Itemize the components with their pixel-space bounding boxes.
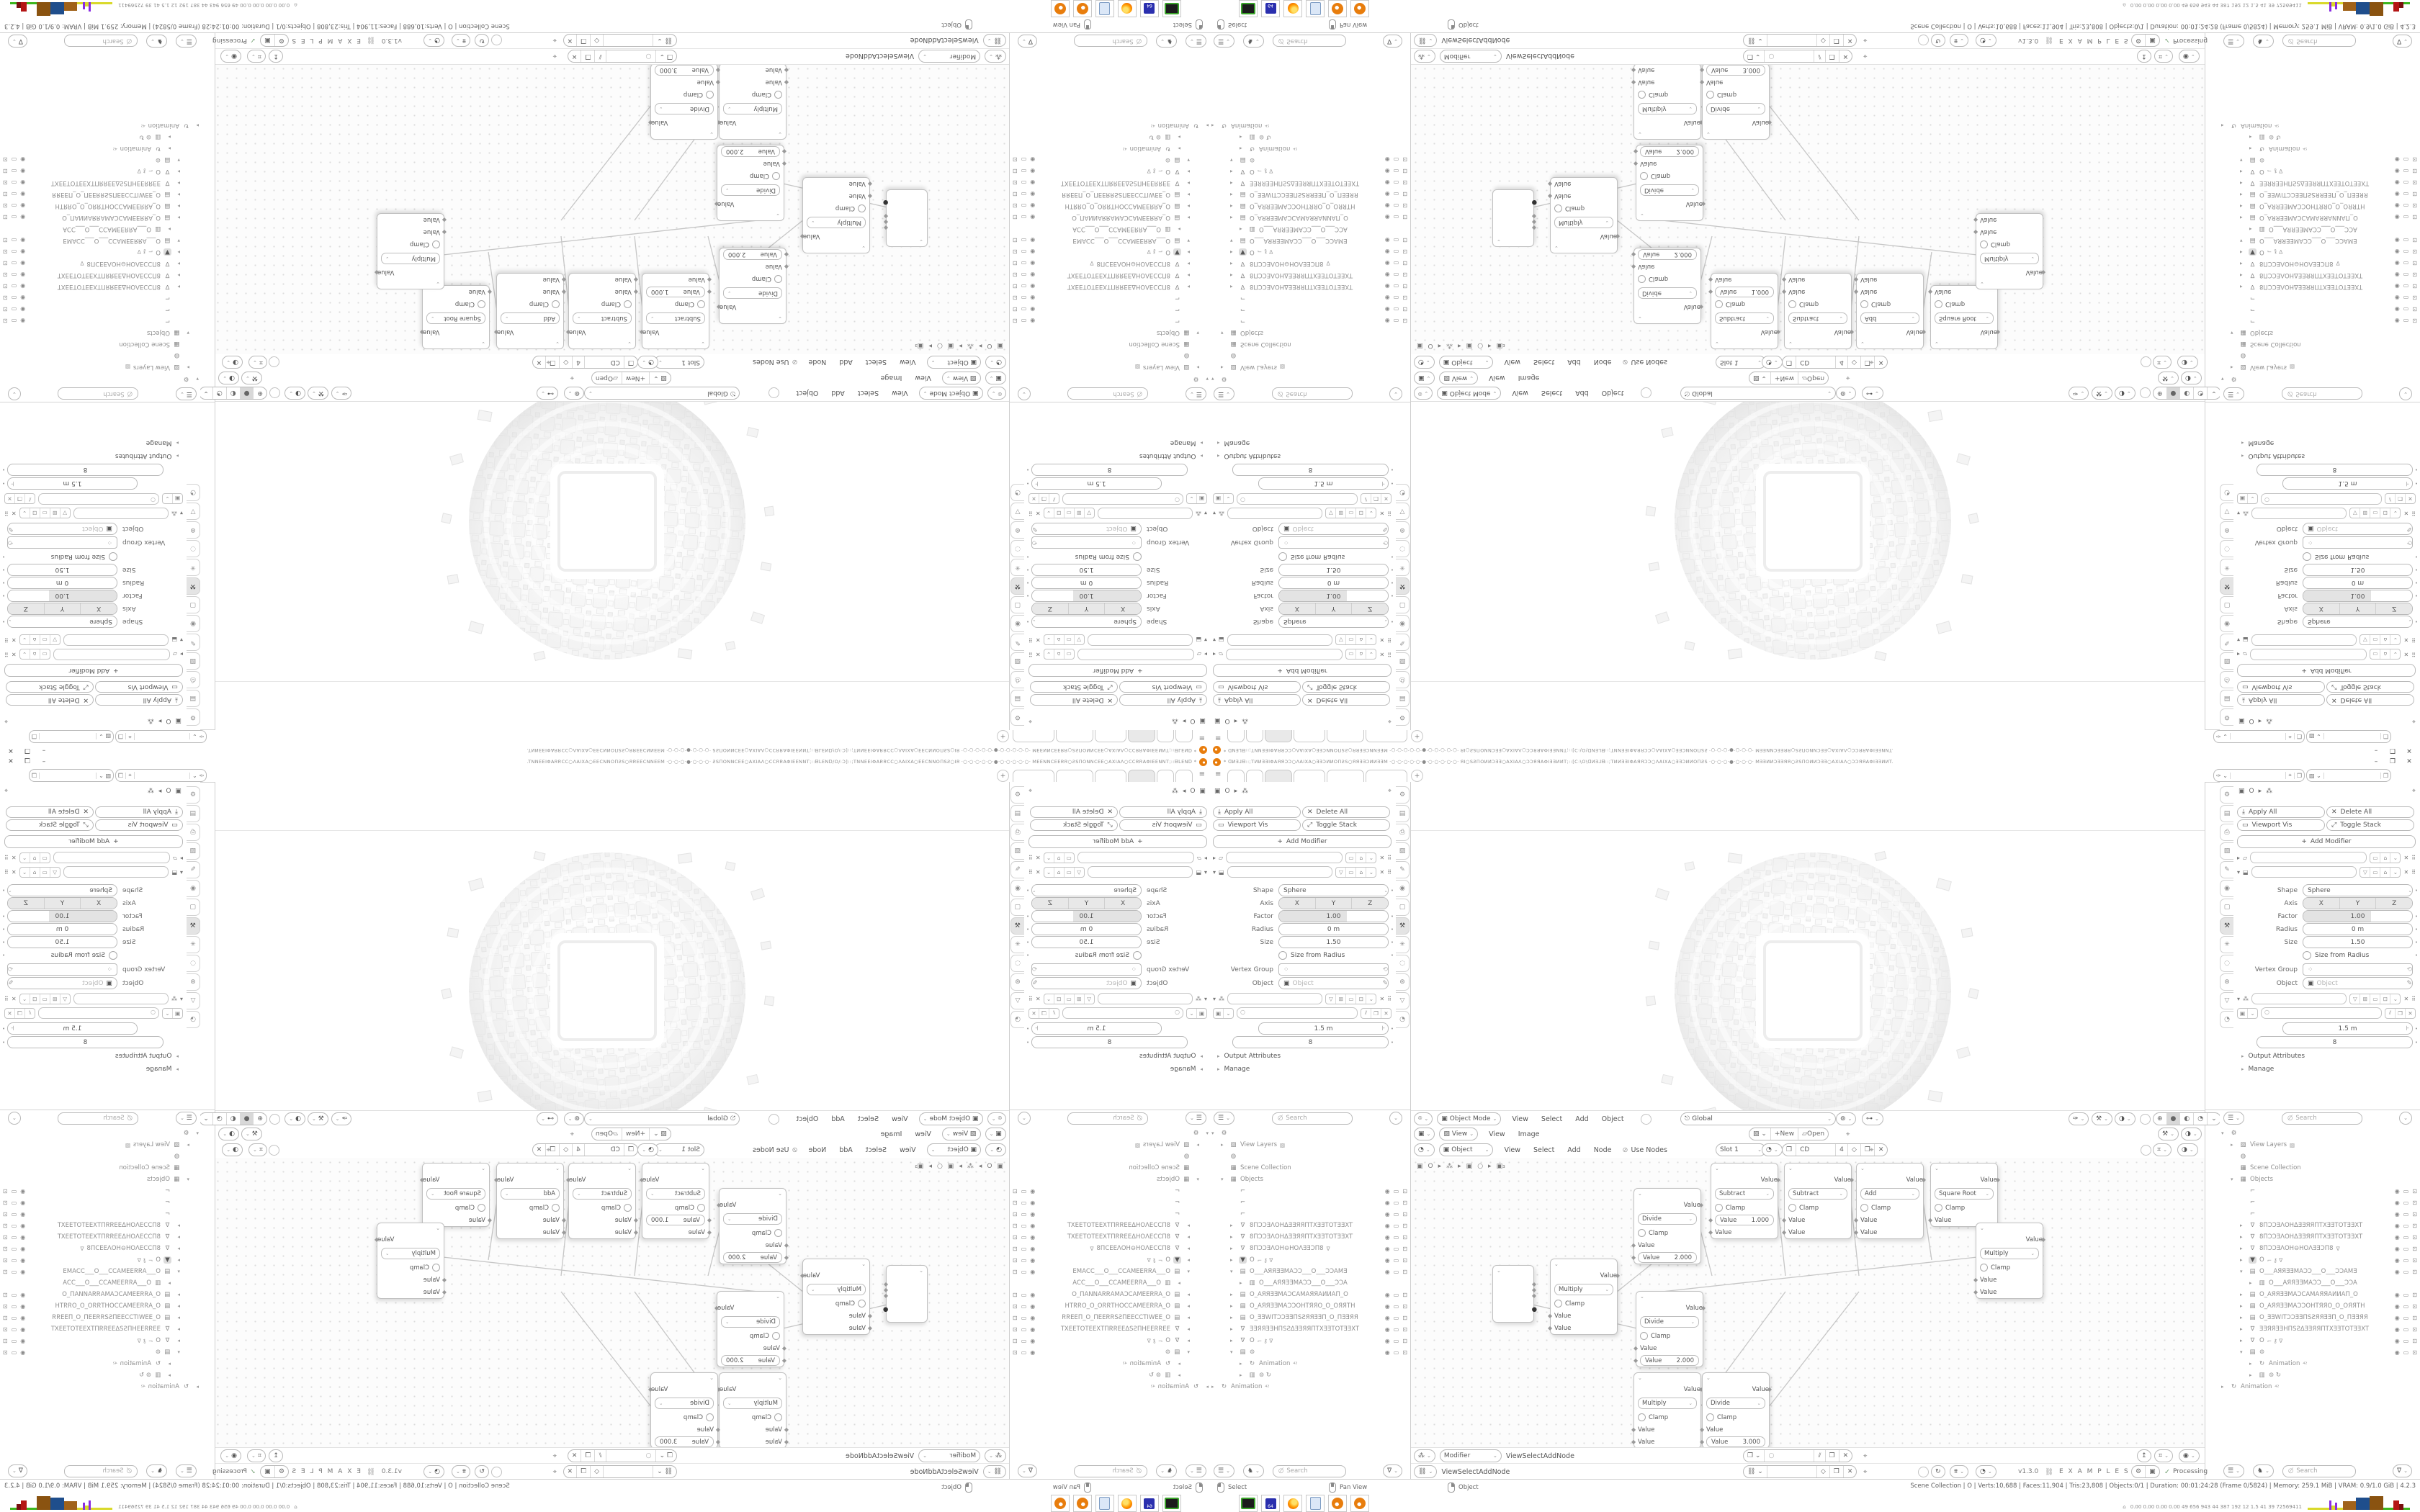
- node-editor-canvas[interactable]: ▣O▸⁂▸▣○▸▣₃ ⌄◆◆◆●⌄Value◆Multiply⌄Clamp◆Va…: [1411, 1158, 2205, 1447]
- math-node-subtract[interactable]: ⌄Value◆Subtract⌄Clamp◆Value1.000◆Value: [642, 273, 709, 349]
- close-icon[interactable]: ✕: [1036, 855, 1041, 861]
- disable-viewport-icon[interactable]: ▭: [1394, 1292, 1399, 1298]
- disable-render-icon[interactable]: ⊡: [3, 1246, 8, 1252]
- hide-icon[interactable]: ◉: [20, 1292, 25, 1298]
- disable-viewport-icon[interactable]: ▭: [1394, 203, 1399, 210]
- axis-toggle[interactable]: XYZ: [7, 897, 117, 909]
- properties-tab-icon-11[interactable]: ▽: [1396, 992, 1410, 1009]
- use-nodes-checkbox[interactable]: ⊘Use Nodes: [753, 359, 797, 366]
- calculator-icon[interactable]: [1306, 0, 1325, 17]
- outliner-item[interactable]: ▸▼O⌐ ⚷ ∇◉▭⊡: [2221, 1254, 2419, 1266]
- properties-tab-icon-10[interactable]: ⊛: [1010, 521, 1024, 539]
- outliner-item[interactable]: ▸∇ƎƎЯЯƎƎHΠSƧΔƎƎЯЯΠTXƎƎTOTƎƎXT◉▭⊡: [2221, 177, 2419, 189]
- outliner-item[interactable]: ▸▥O___AЯЯƎƎMAϽϽ___O___ϽϽA: [1011, 223, 1209, 235]
- menu-object[interactable]: Object: [796, 1115, 818, 1123]
- tool-datablock-selector[interactable]: ✑ ⌄ ⌖ ❐: [115, 730, 207, 743]
- drag-handle-icon[interactable]: ⠿: [1028, 869, 1033, 876]
- properties-tab-icon-5[interactable]: ◉: [187, 880, 200, 897]
- snap-magnet-button[interactable]: ⊶⌄: [537, 387, 558, 400]
- manage-section[interactable]: ▸Manage: [2241, 1066, 2274, 1073]
- disable-viewport-icon[interactable]: ▭: [1021, 295, 1027, 302]
- math-node-subtract[interactable]: ⌄Value◆Subtract⌄Clamp◆Value◆Value: [568, 1163, 636, 1239]
- copy-icon[interactable]: ❐: [116, 734, 126, 740]
- overlays-button[interactable]: ◑⌄: [2115, 1112, 2136, 1125]
- menu-select[interactable]: Select: [1541, 1115, 1562, 1123]
- outliner-item[interactable]: ▾▦Objects: [1, 1174, 199, 1185]
- new-image-button[interactable]: + New: [1771, 372, 1798, 384]
- outliner-item[interactable]: ▸▤O_AЯЯƎƎMAϽCAMAЯЯAИИAΠ_O◉▭⊡: [1211, 212, 1409, 223]
- disable-viewport-icon[interactable]: ▭: [12, 1292, 17, 1298]
- outliner-item[interactable]: ▸▤O_AЯЯƎƎMAϽϽOHTЯЯO_O_OЯЯTH◉▭⊡: [2221, 1300, 2419, 1312]
- toggle-stack-button[interactable]: ⤢Toggle Stack: [1302, 819, 1390, 831]
- hide-icon[interactable]: ◉: [20, 180, 25, 186]
- outliner-item[interactable]: ▾▤O___AЯЯƎƎMAϽϽ___O___ϽϽAMƎ◉▭⊡: [1011, 235, 1209, 246]
- axis-toggle[interactable]: XYZ: [2303, 603, 2413, 615]
- snap-mode-button[interactable]: ⌗⌄: [247, 50, 266, 63]
- outliner-search-input[interactable]: ○̸Search: [64, 1465, 138, 1477]
- disable-render-icon[interactable]: ⊡: [1013, 1269, 1018, 1275]
- outliner-search-input[interactable]: ○̸Search: [64, 35, 138, 48]
- refresh-button[interactable]: ↻: [1931, 34, 1945, 47]
- menu-view[interactable]: View: [1504, 359, 1520, 366]
- outliner-item[interactable]: ▸▥⊜ ↻: [1, 131, 199, 143]
- firefox-icon[interactable]: [1118, 1495, 1137, 1512]
- close-button[interactable]: ✕: [2404, 758, 2414, 765]
- hide-icon[interactable]: ◉: [1030, 1269, 1035, 1275]
- hide-icon[interactable]: ◉: [1385, 1338, 1390, 1344]
- drag-handle-icon[interactable]: ⠿: [1387, 996, 1391, 1002]
- hide-icon[interactable]: ◉: [1030, 1338, 1035, 1344]
- properties-tab-icon-3[interactable]: ▨: [2220, 842, 2233, 860]
- floppy-64-icon[interactable]: 64: [1261, 1495, 1280, 1512]
- pin-icon[interactable]: ⌖: [2285, 772, 2294, 779]
- outliner-item[interactable]: ▸▨View Layers▨: [1, 1139, 199, 1151]
- properties-tab-icon-12[interactable]: ◔: [187, 484, 200, 501]
- properties-tab-icon-5[interactable]: ◉: [1010, 880, 1024, 897]
- menu-node[interactable]: Node: [846, 1452, 864, 1460]
- length-field[interactable]: 1.5 m⊦: [2282, 1022, 2413, 1035]
- disable-viewport-icon[interactable]: ▭: [2403, 318, 2409, 325]
- outliner-item[interactable]: ▸↻Animation⁴²: [1211, 1381, 1409, 1392]
- hide-icon[interactable]: ◉: [1030, 203, 1035, 210]
- math-node-square-root[interactable]: ⌄Value◆Square Root⌄Clamp◆Value: [1930, 285, 1998, 349]
- modifier-slot-collapsed[interactable]: ▸▱ ▭⌂⌄ ✕⠿: [4, 852, 183, 863]
- disable-render-icon[interactable]: ⊡: [1013, 168, 1018, 175]
- math-node-multiply[interactable]: ⌄Value◆Multiply⌄Clamp◆Value◆Value: [1976, 213, 2043, 289]
- outliner-item[interactable]: ▸∇8ΠϽϽƎΛOHΔƎƎЯЯΠTXƎƎTOTƎƎXT◉▭⊡: [1011, 1231, 1209, 1243]
- outliner-item[interactable]: ▾⚙: [1011, 1128, 1209, 1139]
- blender-app-icon-2[interactable]: [1051, 0, 1070, 17]
- delete-all-button[interactable]: ✕Delete All: [1302, 806, 1390, 818]
- outliner-mode-2[interactable]: ♞⌄: [146, 35, 167, 48]
- math-node-multiply[interactable]: ⌄Value◆Multiply⌄Clamp◆Value◆Value: [1550, 177, 1618, 253]
- math-node-subtract[interactable]: ⌄Value◆Subtract⌄Clamp◆Value1.000◆Value: [642, 1163, 709, 1239]
- modifier-slot-collapsed[interactable]: ▸▱ ▭⌂⌄ ✕⠿: [1028, 852, 1207, 863]
- outliner-item[interactable]: ◍: [2221, 1151, 2419, 1162]
- size-field[interactable]: 1.50: [1031, 936, 1142, 948]
- outliner-item[interactable]: ▸∇ƎƎЯЯƎƎHΠSƧΔƎƎЯЯΠTXƎƎTOTƎƎXT◉▭⊡: [1, 177, 199, 189]
- disable-render-icon[interactable]: ⊡: [1013, 1211, 1018, 1218]
- properties-tab-icon-8[interactable]: ✳: [2220, 559, 2233, 576]
- image-type-icon-button[interactable]: ◔⌄: [1762, 356, 1783, 369]
- snap-mode-button[interactable]: ⩨⌄: [1950, 1465, 1968, 1478]
- xray-toggle[interactable]: [269, 388, 280, 399]
- outliner-item[interactable]: ▸∇O⌐ ⚷ ∇◉▭⊡: [2221, 1335, 2419, 1346]
- close-icon[interactable]: ✕: [12, 996, 17, 1002]
- close-icon[interactable]: ✕: [12, 510, 17, 517]
- disable-viewport-icon[interactable]: ▭: [2403, 261, 2409, 267]
- disable-viewport-icon[interactable]: ▭: [1394, 1315, 1399, 1321]
- properties-tab-icon-8[interactable]: ✳: [2220, 936, 2233, 953]
- workspace-tab-1[interactable]: [1227, 730, 1245, 742]
- disable-render-icon[interactable]: ⊡: [3, 1349, 8, 1356]
- modifier-select[interactable]: Modifier⌄: [918, 50, 980, 63]
- properties-tab-icon-0[interactable]: ⚙: [1010, 786, 1024, 804]
- math-node-subtract[interactable]: ⌄Value◆Subtract⌄Clamp◆Value◆Value: [1784, 1163, 1852, 1239]
- editor-type-button[interactable]: ◔⌄: [1414, 356, 1435, 369]
- length-field[interactable]: 1.5 m⊦: [1258, 1022, 1389, 1035]
- modifier-slot-nodes[interactable]: ▾⁂ ▽⊞▭⊡⌄ ✕⠿: [1213, 993, 1391, 1004]
- math-node-divide[interactable]: ⌄Value◆Divide⌄Clamp◆Value◆Value2.000: [1636, 145, 1703, 221]
- disable-viewport-icon[interactable]: ▭: [2403, 1246, 2409, 1252]
- firefox-icon[interactable]: [1283, 1495, 1302, 1512]
- mode-select[interactable]: ▣Object Mode⌄: [1437, 387, 1501, 400]
- properties-tab-icon-7[interactable]: ⚒: [2220, 577, 2233, 595]
- outliner-item[interactable]: ▾⚙: [1211, 373, 1409, 384]
- outliner-item[interactable]: ▾⚙: [1, 373, 199, 384]
- hide-icon[interactable]: ◉: [1385, 1326, 1390, 1333]
- radius-field[interactable]: 0 m: [1278, 923, 1389, 935]
- count-field[interactable]: 8: [2257, 1036, 2413, 1048]
- disable-render-icon[interactable]: ⊡: [1013, 1223, 1018, 1229]
- properties-tab-icon-10[interactable]: ⊛: [187, 521, 200, 539]
- outliner-item[interactable]: ▾▤O___AЯЯƎƎMAϽϽ___O___ϽϽAMƎ◉▭⊡: [1, 1266, 199, 1277]
- outliner-search-input[interactable]: ○̸Search: [1074, 35, 1147, 48]
- workspace-tab-3[interactable]: [1128, 730, 1155, 742]
- workspace-tab-2[interactable]: [1157, 730, 1174, 742]
- outliner-item[interactable]: ◍: [1011, 350, 1209, 361]
- properties-tab-icon-6[interactable]: ▢: [1010, 899, 1024, 916]
- disable-viewport-icon[interactable]: ▭: [2403, 307, 2409, 313]
- menu-add[interactable]: Add: [928, 37, 941, 45]
- modifier-slot-nodes[interactable]: ▾⁂ ▽⊞▭⊡⌄ ✕⠿: [2237, 993, 2416, 1004]
- hide-icon[interactable]: ◉: [1385, 284, 1390, 290]
- node-group-datablock[interactable]: ▣⌄ ○ ⫽❐✕: [2237, 1007, 2416, 1019]
- hide-icon[interactable]: ◉: [1385, 1246, 1390, 1252]
- menu-view[interactable]: View: [915, 1130, 931, 1138]
- disable-viewport-icon[interactable]: ▭: [2403, 295, 2409, 302]
- properties-tab-icon-4[interactable]: ✎: [187, 634, 200, 651]
- outliner-item[interactable]: ▸▤O_AЯЯƎƎMAϽCAMAЯЯAИИAΠ_O◉▭⊡: [2221, 1289, 2419, 1300]
- drag-handle-icon[interactable]: ⠿: [2411, 869, 2416, 876]
- shading-mode-toggle[interactable]: ⊕ ● ◐ ◔ ⌄: [199, 1112, 267, 1125]
- close-icon[interactable]: ✕: [1036, 996, 1041, 1002]
- add-workspace-button[interactable]: +: [997, 730, 1009, 742]
- size-from-radius-radio[interactable]: [1278, 951, 1287, 960]
- disable-viewport-icon[interactable]: ▭: [12, 180, 17, 186]
- math-node-divide[interactable]: ⌄Value◆Divide⌄Clamp◆Value◆Value2.000: [1633, 248, 1701, 324]
- hide-icon[interactable]: ◉: [2395, 1292, 2400, 1298]
- gizmos-button[interactable]: ⚒⌄: [2158, 372, 2179, 384]
- axis-toggle[interactable]: XYZ: [7, 603, 117, 615]
- snap-mode-button[interactable]: ⌗⌄: [247, 1449, 266, 1462]
- wireframe-shading-icon[interactable]: ⊕: [2154, 1113, 2167, 1125]
- disable-viewport-icon[interactable]: ▭: [12, 157, 17, 163]
- menu-view[interactable]: View: [962, 37, 979, 45]
- disable-render-icon[interactable]: ⊡: [1402, 215, 1407, 221]
- modifier-select[interactable]: Modifier⌄: [918, 1449, 980, 1462]
- properties-tab-icon-10[interactable]: ⊛: [1396, 521, 1410, 539]
- image-users-count[interactable]: 4: [1836, 356, 1848, 368]
- toggle-stack-button[interactable]: ⤢Toggle Stack: [2326, 681, 2414, 693]
- hide-icon[interactable]: ◉: [20, 1269, 25, 1275]
- disable-render-icon[interactable]: ⊡: [2412, 1211, 2417, 1218]
- properties-tab-icon-11[interactable]: ▽: [1010, 992, 1024, 1009]
- outliner-search-input[interactable]: ○̸Search: [58, 388, 138, 400]
- properties-tab-icon-9[interactable]: ◌: [1396, 540, 1410, 557]
- count-field[interactable]: 8: [2257, 464, 2413, 476]
- apply-all-button[interactable]: ⤓Apply All: [95, 694, 183, 706]
- modifier-slot-nodes[interactable]: ▾⁂ ▽⊞▭⊡⌄ ✕⠿: [1213, 508, 1391, 519]
- properties-tab-icon-1[interactable]: ▤: [1396, 805, 1410, 822]
- disable-render-icon[interactable]: ⊡: [1402, 1246, 1407, 1252]
- pin-icon[interactable]: ⌖: [2412, 788, 2416, 795]
- manage-section[interactable]: ▸Manage: [146, 1066, 179, 1073]
- disable-viewport-icon[interactable]: ▭: [12, 272, 17, 279]
- workspace-tab-4[interactable]: [1294, 770, 1325, 782]
- menu-view[interactable]: View: [1506, 53, 1523, 60]
- hide-icon[interactable]: ◉: [2395, 1200, 2400, 1206]
- viewport-vis-button[interactable]: ▭Viewport Vis: [1119, 681, 1207, 693]
- pin-icon[interactable]: ⌖: [1863, 1452, 1867, 1460]
- hide-icon[interactable]: ◉: [20, 272, 25, 279]
- outliner-filter-button[interactable]: ⌄: [2399, 1112, 2412, 1125]
- rendered-shading-icon[interactable]: ◔: [2194, 387, 2208, 399]
- outliner-item[interactable]: ▾▤⊜◉▭⊡: [2221, 1346, 2419, 1358]
- snap-magnet-button[interactable]: ⊶⌄: [1862, 1112, 1883, 1125]
- disable-viewport-icon[interactable]: ▭: [2403, 1315, 2409, 1321]
- disable-render-icon[interactable]: ⊡: [1013, 284, 1018, 290]
- hide-icon[interactable]: ◉: [1385, 1303, 1390, 1310]
- close-icon[interactable]: ✕: [12, 869, 17, 876]
- outliner-filter-button[interactable]: ∇⌄: [1018, 35, 1037, 48]
- outliner-item[interactable]: ▸↻Animation⁴²: [2221, 143, 2419, 154]
- disable-viewport-icon[interactable]: ▭: [1394, 1200, 1399, 1206]
- size-field[interactable]: 1.50: [7, 936, 117, 948]
- outliner-mode-2[interactable]: ♞⌄: [2253, 1464, 2274, 1477]
- disable-render-icon[interactable]: ⊡: [3, 1315, 8, 1321]
- properties-tab-icon-7[interactable]: ⚒: [1396, 917, 1410, 935]
- drag-handle-icon[interactable]: ⠿: [4, 855, 9, 861]
- workspace-tab-4[interactable]: [1294, 730, 1325, 742]
- add-modifier-button[interactable]: +Add Modifier: [1213, 664, 1391, 677]
- disable-render-icon[interactable]: ⊡: [1402, 1292, 1407, 1298]
- menu-view[interactable]: View: [898, 1452, 915, 1460]
- node-editor-canvas[interactable]: ▣O▸⁂▸▣○▸▣₃ ⌄◆◆◆●⌄Value◆Multiply⌄Clamp◆Va…: [215, 1158, 1009, 1447]
- outliner-item[interactable]: ▸▼O⌐ ⚷ ∇◉▭⊡: [1011, 246, 1209, 258]
- disable-viewport-icon[interactable]: ▭: [1394, 1269, 1399, 1275]
- hide-icon[interactable]: ◉: [2395, 1188, 2400, 1194]
- properties-tab-icon-2[interactable]: ⎙: [2220, 671, 2233, 688]
- workspace-tabs[interactable]: +: [997, 770, 1193, 782]
- workspace-tab-6[interactable]: [1366, 770, 1407, 782]
- pin-icon[interactable]: ⌖: [2412, 717, 2416, 724]
- outliner-search-input[interactable]: ○̸Search: [1067, 388, 1148, 400]
- editor-type-button[interactable]: ◔⌄: [985, 1143, 1006, 1156]
- window-titlebar[interactable]: * ᗡИƎ⅃ᗺ::;TИИƎƎIΦAЯЯƆϽ○ΛAIXA○ƎƎϽИИOПƧS○Я…: [1210, 756, 2420, 768]
- output-attributes-section[interactable]: ▸Output Attributes: [1139, 1053, 1203, 1060]
- menu-view[interactable]: View: [898, 53, 915, 60]
- disable-viewport-icon[interactable]: ▭: [12, 261, 17, 267]
- manage-section[interactable]: ▸Manage: [1217, 439, 1250, 446]
- disable-render-icon[interactable]: ⊡: [2412, 295, 2417, 302]
- editor-type-button[interactable]: ⛓⌄: [983, 34, 1006, 47]
- properties-tab-column[interactable]: ⚙▤⎙▨✎◉▢⚒✳◌⊛▽◔: [1396, 782, 1410, 1110]
- disable-viewport-icon[interactable]: ▭: [1394, 272, 1399, 279]
- drag-handle-icon[interactable]: ⠿: [1387, 869, 1391, 876]
- hide-icon[interactable]: ◉: [20, 203, 25, 210]
- node-blank[interactable]: ⌄◆◆◆●: [886, 189, 928, 247]
- disable-render-icon[interactable]: ⊡: [1013, 1292, 1018, 1298]
- disable-viewport-icon[interactable]: ▭: [12, 1315, 17, 1321]
- hide-icon[interactable]: ◉: [1385, 1211, 1390, 1218]
- refresh-button[interactable]: ↻: [1931, 1465, 1945, 1478]
- outliner-item[interactable]: ▸∇ƎƎЯЯƎƎHΠSƧΔƎƎЯЯΠTXƎƎTOTƎƎXT◉▭⊡: [1211, 1323, 1409, 1335]
- size-field[interactable]: 1.50: [1278, 564, 1389, 576]
- outliner-item[interactable]: ▸▤O_ƎƎWITϽϽƎƎΠSƧЯЯƎƎΠ_O_ΠƎƎЯЯ◉▭⊡: [1011, 1312, 1209, 1323]
- object-field[interactable]: ▣Object✎: [2303, 523, 2413, 535]
- annotate-tool-button[interactable]: ✑⌄: [2069, 387, 2089, 400]
- menu-select[interactable]: Select: [858, 390, 879, 397]
- disable-viewport-icon[interactable]: ▭: [12, 1338, 17, 1344]
- object-field[interactable]: ▣Object✎: [1031, 523, 1142, 535]
- outliner-item[interactable]: ▦Scene Collection: [1, 338, 199, 350]
- disable-viewport-icon[interactable]: ▭: [2403, 1269, 2409, 1275]
- outliner-item[interactable]: ▸▨View Layers▨: [2221, 1139, 2419, 1151]
- snap-magnet-button[interactable]: ⊶⌄: [1862, 387, 1883, 400]
- open-image-button[interactable]: ▱ Open: [592, 1128, 622, 1140]
- outliner-search-input[interactable]: ○̸Search: [1273, 35, 1346, 48]
- outliner-item[interactable]: ▸↻Animation⁴²: [2221, 1381, 2419, 1392]
- math-node-subtract[interactable]: ⌄Value◆Subtract⌄Clamp◆Value1.000◆Value: [1711, 273, 1778, 349]
- size-field[interactable]: 1.50: [2303, 936, 2413, 948]
- shape-select[interactable]: Sphere⌄: [1031, 884, 1142, 896]
- outliner-item[interactable]: ⌐◉▭⊡: [1211, 1185, 1409, 1197]
- disable-viewport-icon[interactable]: ▭: [1394, 157, 1399, 163]
- outliner-item[interactable]: ▸∇8ΠϽϽƎΛOHΔƎƎЯЯΠTXƎƎTOTƎƎXT◉▭⊡: [1, 281, 199, 292]
- disable-viewport-icon[interactable]: ▭: [1021, 1326, 1027, 1333]
- outliner-item[interactable]: ⌐◉▭⊡: [1011, 1208, 1209, 1220]
- properties-tab-icon-12[interactable]: ◔: [187, 1011, 200, 1028]
- modifier-slot-expanded[interactable]: ▾⬓ ▽▭⌂⌄ ✕⠿: [1213, 634, 1391, 646]
- close-icon[interactable]: ✕: [2403, 869, 2408, 876]
- properties-tab-icon-4[interactable]: ✎: [1396, 634, 1410, 651]
- toggle-circle[interactable]: [1918, 1467, 1929, 1477]
- disable-viewport-icon[interactable]: ▭: [12, 215, 17, 221]
- hide-icon[interactable]: ◉: [1385, 1269, 1390, 1275]
- editor-type-button[interactable]: ▣⌄: [1414, 372, 1435, 384]
- disable-render-icon[interactable]: ⊡: [1402, 1315, 1407, 1321]
- disable-viewport-icon[interactable]: ▭: [12, 192, 17, 198]
- calculator-icon[interactable]: [1095, 0, 1114, 17]
- outliner-item[interactable]: ▾▦Objects: [1211, 1174, 1409, 1185]
- outliner-item[interactable]: ⌐◉▭⊡: [2221, 1197, 2419, 1208]
- output-attributes-section[interactable]: ▸Output Attributes: [2241, 452, 2305, 459]
- modifier-slot-expanded[interactable]: ▾⬓ ▽▭⌂⌄ ✕⠿: [4, 866, 183, 878]
- menu-select[interactable]: Select: [1458, 1468, 1479, 1476]
- menu-select[interactable]: Select: [1458, 37, 1479, 45]
- hide-icon[interactable]: ◉: [1385, 1234, 1390, 1241]
- disable-viewport-icon[interactable]: ▭: [1021, 157, 1027, 163]
- window-titlebar[interactable]: * ᗡИƎ⅃ᗺ::;TИИƎƎIΦAЯЯƆϽ○ΛAIXA○ƎƎϽИИOПƧS○Я…: [0, 756, 1210, 768]
- fake-user-icon[interactable]: ◇: [559, 1144, 572, 1156]
- disable-render-icon[interactable]: ⊡: [2412, 249, 2417, 256]
- menu-node[interactable]: Node: [1594, 1146, 1612, 1154]
- outliner-item[interactable]: ▸∇8ΠϽϽƎΛOHΔƎƎЯЯΠTXƎƎTOTƎƎXT◉▭⊡: [1011, 1220, 1209, 1231]
- screen-recorder-icon[interactable]: [1162, 1495, 1181, 1512]
- outliner-item[interactable]: ▸▼O⌐ ⚷ ∇◉▭⊡: [1011, 1254, 1209, 1266]
- menu-view[interactable]: View: [1441, 37, 1458, 45]
- disable-viewport-icon[interactable]: ▭: [12, 307, 17, 313]
- properties-tab-icon-1[interactable]: ▤: [2220, 805, 2233, 822]
- disable-viewport-icon[interactable]: ▭: [12, 1211, 17, 1218]
- snap-mode-button[interactable]: ⌗⌄: [2154, 1449, 2173, 1462]
- rendered-shading-icon[interactable]: ◔: [212, 1113, 226, 1125]
- outliner-item[interactable]: ⌐◉▭⊡: [1011, 1197, 1209, 1208]
- disable-viewport-icon[interactable]: ▭: [12, 1223, 17, 1229]
- disable-viewport-icon[interactable]: ▭: [12, 1188, 17, 1194]
- hide-icon[interactable]: ◉: [1030, 318, 1035, 325]
- disable-viewport-icon[interactable]: ▭: [1394, 261, 1399, 267]
- hide-icon[interactable]: ◉: [1385, 272, 1390, 279]
- blender-app-icon-2[interactable]: [1350, 1495, 1369, 1512]
- size-from-radius-radio[interactable]: [1133, 951, 1142, 960]
- overlays-button[interactable]: ◑⌄: [2177, 356, 2198, 369]
- properties-tab-icon-1[interactable]: ▤: [187, 805, 200, 822]
- node-editor-canvas[interactable]: ▣O▸⁂▸▣○▸▣₃ ⌄◆◆◆●⌄Value◆Multiply⌄Clamp◆Va…: [215, 65, 1009, 354]
- workspace-tab-2[interactable]: [1157, 770, 1174, 782]
- properties-tab-icon-6[interactable]: ▢: [2220, 596, 2233, 613]
- outliner-item[interactable]: ▸∇O⌐ ⚷ ∇◉▭⊡: [2221, 166, 2419, 177]
- close-icon[interactable]: ✕: [12, 855, 17, 861]
- outliner-item[interactable]: ▸∇O⌐ ⚷ ∇◉▭⊡: [1011, 166, 1209, 177]
- properties-tab-icon-1[interactable]: ▤: [187, 690, 200, 707]
- outliner-item[interactable]: ⌐◉▭⊡: [1011, 315, 1209, 327]
- image-view-mode[interactable]: ▨View⌄: [942, 372, 981, 384]
- outliner-item[interactable]: ▾▤O___AЯЯƎƎMAϽϽ___O___ϽϽAMƎ◉▭⊡: [2221, 1266, 2419, 1277]
- material-preview-button[interactable]: ◔⌄: [423, 34, 444, 47]
- menu-view[interactable]: View: [892, 390, 908, 397]
- vertex-group-field[interactable]: ⁘⟲: [1031, 963, 1142, 976]
- menu-object[interactable]: Object: [796, 390, 818, 397]
- disable-viewport-icon[interactable]: ▭: [1021, 238, 1027, 244]
- hide-icon[interactable]: ◉: [1385, 1257, 1390, 1264]
- image-datablock-selector[interactable]: ▨ ⌄ ❐: [29, 769, 114, 782]
- workspace-tab-4[interactable]: [1095, 770, 1126, 782]
- pin-icon[interactable]: ⌖: [1870, 1146, 1873, 1154]
- math-node-divide[interactable]: ⌄Value◆Divide⌄Clamp◆Value◆Value3.000: [650, 1372, 718, 1447]
- workspace-tab-4[interactable]: [1095, 730, 1126, 742]
- properties-tab-icon-4[interactable]: ✎: [187, 861, 200, 878]
- overlays-button[interactable]: ◑⌄: [2181, 372, 2202, 384]
- outliner-item[interactable]: ▸▥⊜ ↻: [1211, 131, 1409, 143]
- outliner-filter-button[interactable]: ⌄: [1018, 1112, 1031, 1125]
- outliner-item[interactable]: ▸∇ƎƎЯЯƎƎHΠSƧΔƎƎЯЯΠTXƎƎTOTƎƎXT◉▭⊡: [1011, 177, 1209, 189]
- math-node-subtract[interactable]: ⌄Value◆Subtract⌄Clamp◆Value◆Value: [1784, 273, 1852, 349]
- menu-add[interactable]: Add: [1575, 1115, 1588, 1123]
- hide-icon[interactable]: ◉: [1385, 157, 1390, 163]
- outliner-mode-2[interactable]: ♞⌄: [1156, 35, 1177, 48]
